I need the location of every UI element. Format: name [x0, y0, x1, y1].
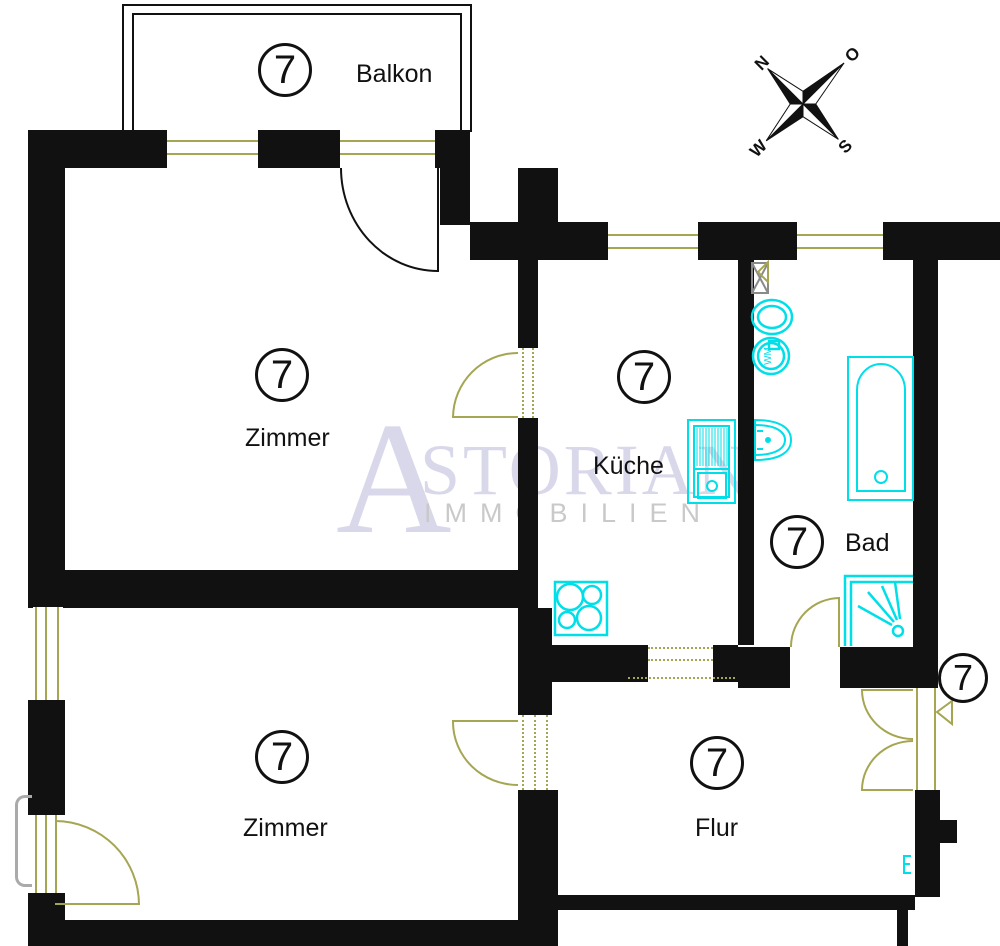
room-label-kueche: Küche	[593, 452, 664, 481]
room-number-kueche: 7	[617, 350, 671, 404]
floor-plan: A STORIAN IMMOBILIEN	[0, 0, 1000, 946]
entrance-door-stop	[937, 701, 952, 724]
kitchen-sink	[688, 420, 735, 503]
room-label-bad: Bad	[845, 529, 889, 558]
room-number-zimmer1: 7	[255, 348, 309, 402]
stove	[555, 582, 607, 635]
compass-east-label: O	[841, 43, 864, 66]
vent-shaft	[752, 263, 768, 293]
room-number-balkon: 7	[258, 43, 312, 97]
electrical-marker	[904, 856, 911, 873]
unit-number-entrance: 7	[938, 653, 988, 703]
room-number-bad: 7	[770, 515, 824, 569]
compass-rose: N O S W	[705, 2, 906, 203]
washing-machine: WM	[753, 338, 789, 374]
room-label-flur: Flur	[695, 814, 738, 843]
shower	[845, 576, 913, 646]
toilet	[752, 300, 792, 334]
washing-machine-label: WM	[763, 347, 774, 365]
bathroom-sink	[755, 420, 791, 460]
room-number-flur: 7	[690, 736, 744, 790]
room-label-zimmer1: Zimmer	[245, 424, 330, 453]
room-number-zimmer2: 7	[255, 730, 309, 784]
fixtures-layer: N O S W WM	[0, 0, 1000, 946]
room-label-zimmer2: Zimmer	[243, 814, 328, 843]
bathtub	[848, 357, 913, 500]
room-label-balkon: Balkon	[356, 60, 432, 89]
